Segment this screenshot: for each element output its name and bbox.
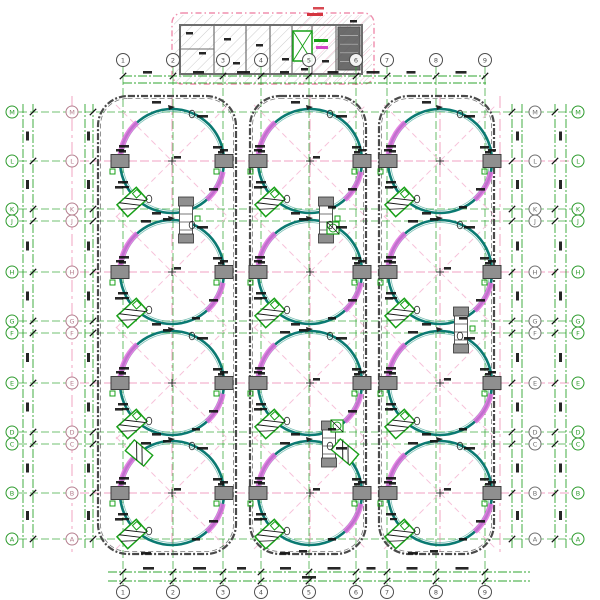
pump-skid: [385, 519, 415, 548]
text-blob: [258, 482, 265, 485]
pump-skid: [255, 519, 285, 548]
text-blob: [122, 518, 129, 520]
text-blob: [476, 299, 485, 302]
grid-bubble-label: 3: [221, 56, 225, 64]
pump-skid: [385, 409, 415, 438]
tank-platform: [249, 155, 267, 168]
platform-ladder: [214, 391, 219, 396]
text-blob: [354, 151, 360, 154]
text-blob: [386, 477, 396, 480]
text-blob: [459, 428, 467, 431]
text-blob: [115, 297, 123, 300]
grid-bubble-label: D: [69, 428, 74, 436]
platform-ladder: [110, 169, 115, 174]
text-blob: [389, 150, 396, 153]
text-blob: [218, 483, 224, 486]
insulation-arc: [120, 454, 137, 491]
text-blob: [186, 32, 193, 35]
text-blob: [258, 150, 265, 153]
grid-bubble-label: H: [576, 268, 581, 276]
text-blob: [26, 242, 29, 251]
text-blob: [516, 353, 519, 362]
text-blob: [390, 518, 397, 520]
text-blob: [143, 567, 154, 570]
text-blob: [209, 299, 218, 302]
text-blob: [152, 433, 161, 436]
tank-platform: [249, 487, 267, 500]
text-blob: [456, 567, 469, 570]
text-blob: [255, 477, 265, 480]
grid-bubble-label: M: [575, 108, 581, 116]
platform-ladder: [110, 280, 115, 285]
tank-platform: [353, 487, 371, 500]
text-blob: [430, 550, 438, 553]
grid-bubble-label: F: [70, 329, 74, 337]
pump-skid: [255, 409, 285, 438]
insulation-arc: [258, 454, 275, 491]
text-blob: [328, 206, 336, 209]
insulation-arc: [475, 504, 491, 532]
insulation-arc: [345, 283, 361, 311]
tank-platform: [483, 266, 501, 279]
text-blob: [26, 132, 29, 141]
text-blob: [301, 68, 308, 71]
text-blob: [386, 181, 396, 184]
text-blob: [516, 403, 519, 412]
tank-platform: [111, 155, 129, 168]
grid-bubble-label: 1: [121, 56, 125, 64]
grid-bubble-label: 9: [483, 56, 487, 64]
text-blob: [480, 368, 489, 371]
text-blob: [258, 372, 265, 375]
text-blob: [115, 186, 123, 189]
text-blob: [354, 483, 360, 486]
text-blob: [119, 482, 126, 485]
grid-bubble-label: B: [533, 489, 537, 497]
text-blob: [559, 464, 562, 473]
text-blob: [197, 447, 208, 450]
insulation-arc: [388, 344, 405, 381]
text-blob: [444, 378, 451, 381]
text-blob: [87, 353, 90, 362]
text-blob: [192, 428, 200, 431]
text-blob: [197, 226, 208, 229]
platform-ladder: [214, 169, 219, 174]
grid-bubble-label: 7: [385, 588, 389, 596]
text-blob: [118, 181, 128, 184]
text-blob: [118, 513, 128, 516]
platform-ladder: [214, 280, 219, 285]
text-blob: [386, 256, 396, 259]
text-blob: [485, 373, 491, 376]
grid-bubble-label: 6: [354, 56, 358, 64]
grid-bubble-label: M: [9, 108, 15, 116]
tank-platform: [215, 266, 233, 279]
grid-bubble-label: F: [533, 329, 537, 337]
text-blob: [516, 132, 519, 141]
text-blob: [254, 408, 262, 411]
text-blob: [26, 353, 29, 362]
text-blob: [26, 464, 29, 473]
text-blob: [559, 511, 562, 520]
tank-platform: [215, 487, 233, 500]
text-blob: [516, 511, 519, 520]
text-blob: [476, 188, 485, 191]
text-blob: [119, 145, 129, 148]
text-blob: [119, 367, 129, 370]
platform-ladder: [110, 501, 115, 506]
text-blob: [122, 408, 129, 410]
grid-bubble-label: L: [533, 157, 537, 165]
text-blob: [256, 403, 266, 406]
text-blob: [26, 511, 29, 520]
text-blob: [282, 58, 289, 61]
grid-bubble-label: K: [533, 205, 538, 213]
text-blob: [192, 317, 200, 320]
text-blob: [476, 520, 485, 523]
text-blob: [87, 242, 90, 251]
text-blob: [313, 488, 320, 491]
grid-bubble-label: 8: [434, 56, 438, 64]
grid-bubble-label: L: [70, 157, 74, 165]
grid-bubble-label: D: [575, 428, 580, 436]
platform-ladder: [482, 391, 487, 396]
grid-bubble-label: K: [576, 205, 581, 213]
text-blob: [408, 552, 418, 555]
tank-platform: [379, 487, 397, 500]
text-blob: [456, 71, 467, 74]
text-blob: [559, 242, 562, 251]
text-blob: [256, 181, 266, 184]
text-blob: [218, 151, 224, 154]
text-blob: [87, 464, 90, 473]
text-blob: [291, 101, 300, 104]
grid-bubble-label: K: [70, 205, 75, 213]
insulation-arc: [345, 504, 361, 532]
grid-bubble-label: C: [10, 440, 15, 448]
text-blob: [192, 538, 200, 541]
text-blob: [516, 464, 519, 473]
text-blob: [464, 226, 475, 229]
grid-bubble-label: E: [533, 379, 537, 387]
grid-bubble-label: 5: [307, 588, 311, 596]
text-blob: [256, 513, 266, 516]
pump-skid: [385, 298, 415, 327]
insulation-arc: [475, 394, 491, 422]
insulation-arc: [388, 122, 405, 159]
text-blob: [559, 403, 562, 412]
text-blob: [209, 410, 218, 413]
text-blob: [255, 145, 265, 148]
text-blob: [422, 323, 431, 326]
text-blob: [299, 550, 307, 553]
tank-platform: [353, 155, 371, 168]
magenta-label-text: [316, 46, 328, 49]
text-blob: [118, 292, 128, 295]
pump-skid: [255, 187, 285, 216]
text-blob: [313, 156, 320, 159]
grid-bubble-label: E: [576, 379, 580, 387]
grid-bubble-label: H: [533, 268, 538, 276]
text-blob: [480, 146, 489, 149]
insulation-arc: [345, 172, 361, 200]
grid-lines-layer: [8, 66, 582, 586]
tank-platform: [379, 377, 397, 390]
text-blob: [26, 180, 29, 189]
grid-bubble-label: 2: [171, 588, 175, 596]
text-blob: [209, 520, 218, 523]
tank-platform: [111, 377, 129, 390]
text-blob: [213, 257, 222, 260]
insulation-arc: [120, 344, 137, 381]
platform-ladder: [482, 501, 487, 506]
text-blob: [193, 567, 206, 570]
text-blob: [87, 511, 90, 520]
text-blob: [174, 267, 181, 270]
text-blob: [336, 337, 347, 340]
text-blob: [213, 146, 222, 149]
grid-bubble-label: K: [10, 205, 15, 213]
text-blob: [218, 373, 224, 376]
text-blob: [559, 180, 562, 189]
text-blob: [367, 567, 376, 570]
text-blob: [422, 101, 431, 104]
tank-platform: [483, 377, 501, 390]
text-blob: [328, 428, 336, 431]
tank-platform: [111, 487, 129, 500]
text-blob: [386, 513, 396, 516]
text-blob: [350, 20, 357, 23]
text-blob: [119, 256, 129, 259]
text-blob: [280, 442, 290, 445]
text-blob: [141, 442, 151, 445]
tank-platform: [379, 155, 397, 168]
grid-bubble-label: D: [532, 428, 537, 436]
tank-platform: [249, 377, 267, 390]
pump-skid: [117, 298, 147, 327]
text-blob: [485, 262, 491, 265]
text-blob: [87, 132, 90, 141]
insulation-arc: [207, 283, 223, 311]
text-blob: [152, 323, 161, 326]
platform-ladder: [214, 501, 219, 506]
text-blob: [328, 317, 336, 320]
text-blob: [385, 186, 393, 189]
text-blob: [254, 186, 262, 189]
text-blob: [258, 261, 265, 264]
text-blob: [348, 299, 357, 302]
text-blob: [199, 52, 206, 55]
text-blob: [559, 132, 562, 141]
text-blob: [87, 180, 90, 189]
text-blob: [422, 433, 431, 436]
text-blob: [328, 567, 341, 570]
grid-bubble-label: 5: [307, 56, 311, 64]
text-blob: [444, 488, 451, 491]
text-blob: [408, 331, 418, 334]
text-blob: [485, 151, 491, 154]
text-blob: [389, 372, 396, 375]
text-blob: [213, 478, 222, 481]
text-blob: [254, 518, 262, 521]
text-blob: [422, 212, 431, 215]
text-blob: [87, 292, 90, 301]
grid-bubble-label: A: [70, 535, 75, 543]
plan-svg: 112233445566778899MMMMLLLLKKKKJJJJHHHHGG…: [0, 0, 600, 600]
text-blob: [280, 331, 290, 334]
text-blob: [386, 367, 396, 370]
grid-bubble-label: B: [576, 489, 580, 497]
text-blob: [255, 256, 265, 259]
insulation-arc: [207, 172, 223, 200]
text-blob: [119, 150, 126, 153]
pump-skid: [385, 187, 415, 216]
text-blob: [322, 60, 329, 63]
tank-platform: [215, 155, 233, 168]
text-blob: [256, 44, 263, 47]
grid-bubble-label: 4: [259, 588, 263, 596]
text-blob: [115, 518, 123, 521]
text-blob: [559, 353, 562, 362]
grid-bubble-label: L: [10, 157, 14, 165]
grid-bubble-label: 3: [221, 588, 225, 596]
text-blob: [299, 218, 307, 221]
text-blob: [26, 403, 29, 412]
text-blob: [336, 447, 347, 450]
text-blob: [459, 206, 467, 209]
green-label-text: [314, 39, 328, 42]
text-blob: [224, 38, 231, 41]
text-blob: [193, 71, 204, 74]
text-blob: [197, 115, 208, 118]
grid-bubble-label: G: [575, 317, 580, 325]
text-blob: [313, 378, 320, 381]
text-blob: [516, 180, 519, 189]
text-blob: [352, 146, 361, 149]
grid-bubble-label: E: [10, 379, 14, 387]
insulation-arc: [258, 344, 275, 381]
grid-bubble-label: 8: [434, 588, 438, 596]
text-blob: [480, 257, 489, 260]
text-blob: [302, 576, 316, 579]
text-blob: [385, 408, 393, 411]
grid-bubble-label: B: [10, 489, 14, 497]
text-blob: [485, 483, 491, 486]
text-blob: [255, 367, 265, 370]
grid-bubble-label: H: [10, 268, 15, 276]
text-blob: [464, 337, 475, 340]
platform-ladder: [482, 280, 487, 285]
text-blob: [197, 337, 208, 340]
grid-bubble-label: 4: [259, 56, 263, 64]
text-blob: [280, 552, 290, 555]
grid-bubble-label: E: [70, 379, 74, 387]
text-blob: [119, 477, 129, 480]
text-blob: [464, 447, 475, 450]
text-blob: [352, 478, 361, 481]
pump-skid: [117, 409, 147, 438]
text-blob: [119, 372, 126, 375]
grid-bubble-label: 2: [171, 56, 175, 64]
tank-platform: [379, 266, 397, 279]
text-blob: [408, 220, 418, 223]
text-blob: [122, 186, 129, 188]
insulation-arc: [388, 233, 405, 270]
text-blob: [119, 261, 126, 264]
text-blob: [407, 71, 416, 74]
insulation-arc: [475, 283, 491, 311]
cad-drawing: 112233445566778899MMMMLLLLKKKKJJJJHHHHGG…: [0, 0, 600, 600]
text-blob: [115, 408, 123, 411]
text-blob: [291, 323, 300, 326]
grid-bubble-label: J: [10, 217, 13, 225]
text-blob: [280, 71, 289, 74]
text-blob: [407, 567, 418, 570]
text-blob: [291, 212, 300, 215]
grid-bubble-label: F: [10, 329, 14, 337]
text-blob: [516, 292, 519, 301]
pump-skid: [117, 519, 147, 548]
pump-skid: [117, 187, 147, 216]
insulation-arc: [388, 454, 405, 491]
grid-bubble-label: 6: [354, 588, 358, 596]
tank-platform: [249, 266, 267, 279]
text-blob: [352, 368, 361, 371]
text-blob: [354, 262, 360, 265]
text-blob: [152, 101, 161, 104]
insulation-arc: [345, 394, 361, 422]
grid-bubble-label: F: [576, 329, 580, 337]
text-blob: [480, 478, 489, 481]
tank-platform: [111, 266, 129, 279]
text-blob: [386, 403, 396, 406]
text-blob: [328, 538, 336, 541]
text-blob: [464, 115, 475, 118]
grid-bubble-label: J: [576, 217, 579, 225]
text-blob: [118, 403, 128, 406]
text-blob: [516, 242, 519, 251]
text-blob: [143, 71, 152, 74]
annotation-marks: [115, 101, 491, 555]
grid-bubble-label: B: [70, 489, 74, 497]
grid-bubble-label: A: [10, 535, 15, 543]
grid-bubble-label: L: [576, 157, 580, 165]
grid-bubble-label: G: [9, 317, 14, 325]
text-blob: [237, 71, 250, 74]
text-blob: [233, 62, 240, 65]
text-blob: [336, 115, 347, 118]
text-blob: [348, 410, 357, 413]
text-blob: [386, 292, 396, 295]
text-blob: [237, 567, 246, 570]
grid-bubble-label: H: [70, 268, 75, 276]
text-blob: [352, 257, 361, 260]
tank-platform: [483, 155, 501, 168]
text-blob: [348, 188, 357, 191]
grid-bubble-label: M: [69, 108, 75, 116]
grid-bubble-label: C: [533, 440, 538, 448]
text-blob: [141, 552, 151, 555]
text-blob: [26, 292, 29, 301]
tank-platform: [483, 487, 501, 500]
insulation-arc: [207, 504, 223, 532]
grid-bubble-label: G: [532, 317, 537, 325]
text-blob: [87, 403, 90, 412]
tank-platform: [353, 266, 371, 279]
text-blob: [367, 71, 380, 74]
tank-platform: [353, 377, 371, 390]
grid-bubble-label: 1: [121, 588, 125, 596]
